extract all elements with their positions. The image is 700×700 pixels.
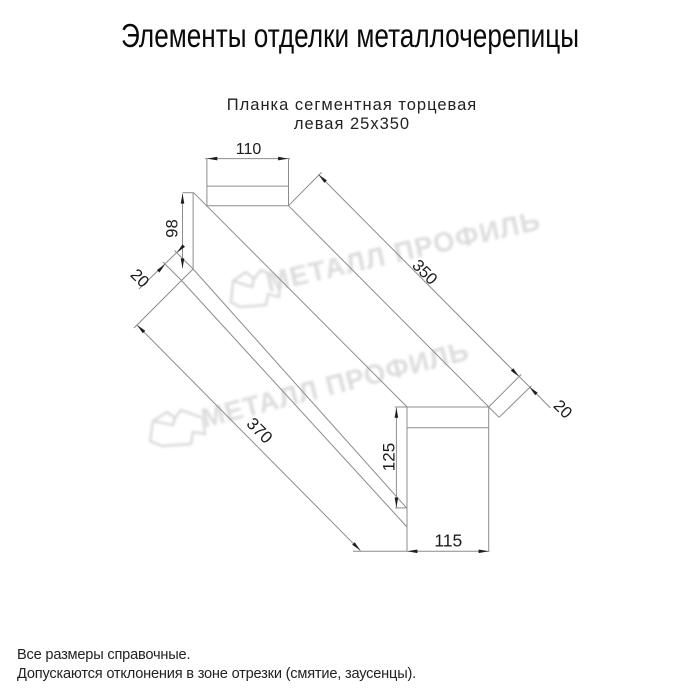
- svg-text:110: 110: [236, 141, 262, 158]
- svg-text:98: 98: [164, 219, 182, 237]
- svg-text:115: 115: [434, 531, 462, 551]
- svg-text:125: 125: [380, 443, 399, 471]
